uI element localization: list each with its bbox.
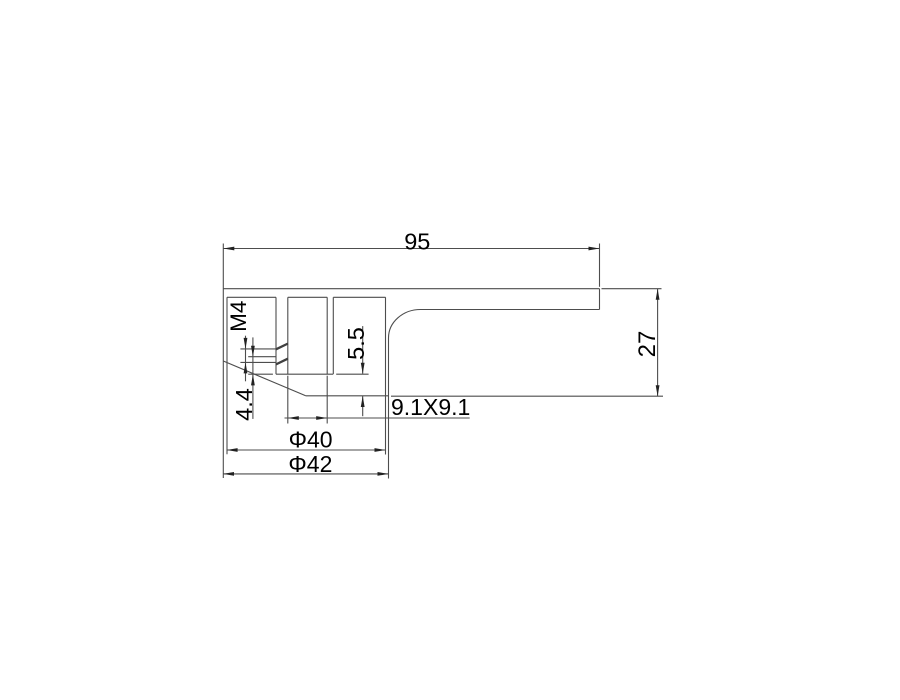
svg-text:5.5: 5.5: [343, 327, 369, 360]
svg-text:M4: M4: [226, 301, 251, 332]
svg-text:27: 27: [634, 331, 661, 358]
svg-text:Φ42: Φ42: [288, 451, 332, 477]
svg-text:Φ40: Φ40: [289, 426, 333, 452]
svg-text:95: 95: [404, 228, 430, 254]
svg-text:9.1X9.1: 9.1X9.1: [391, 394, 470, 420]
svg-text:4.4: 4.4: [231, 388, 257, 421]
